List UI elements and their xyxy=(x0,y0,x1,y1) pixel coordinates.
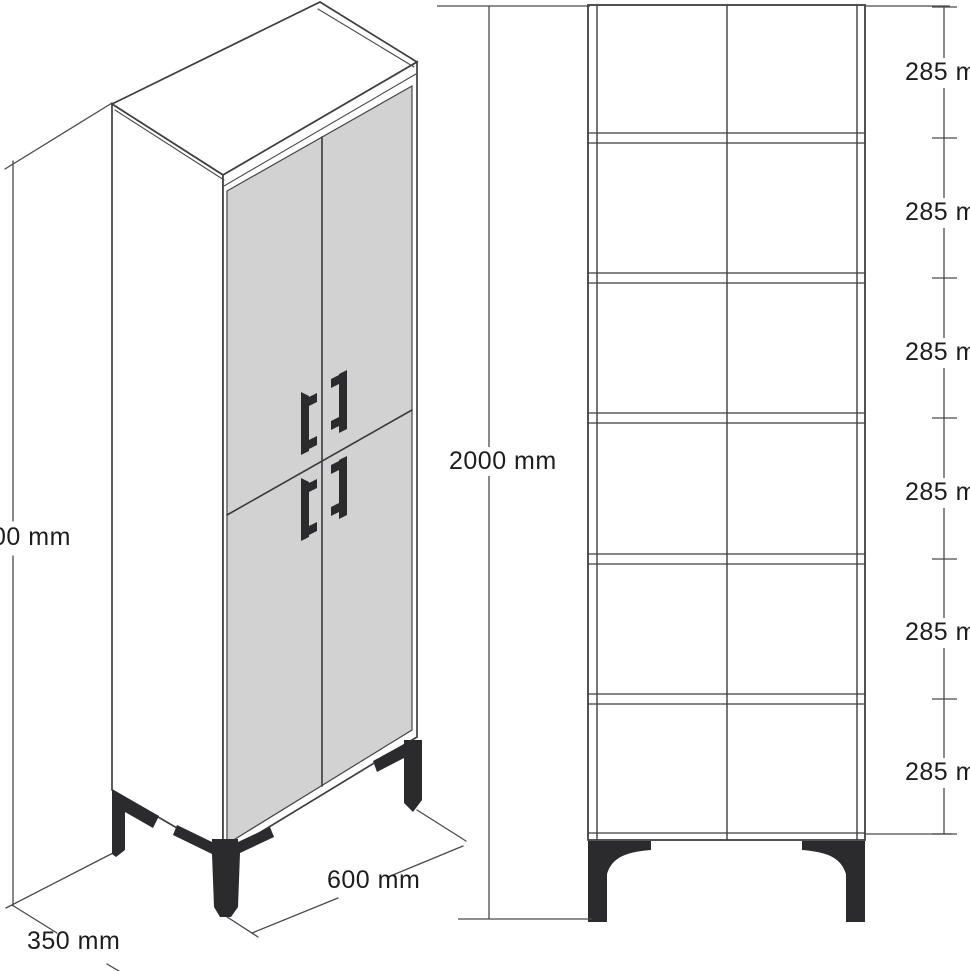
compartment-height-label: 285 mm xyxy=(905,479,970,505)
front-leg-left xyxy=(588,841,651,922)
front-leg-right xyxy=(802,841,865,922)
technical-drawing-canvas: 00 mm 350 mm 600 mm 2000 mm 285 mm 285 m… xyxy=(0,0,970,971)
front-height-dimension-label: 2000 mm xyxy=(449,448,549,474)
iso-height-extension-bottom xyxy=(6,853,113,908)
cabinet-drawing xyxy=(0,0,970,971)
compartment-height-label: 285 mm xyxy=(905,199,970,225)
cabinet-left-face xyxy=(112,104,223,855)
iso-height-dimension-label: 00 mm xyxy=(0,524,71,550)
iso-depth-dimension-label: 350 mm xyxy=(27,928,120,954)
compartment-dimension xyxy=(865,6,957,834)
iso-height-extension-top xyxy=(5,103,112,169)
door-panels xyxy=(227,86,412,844)
front-legs xyxy=(588,841,865,922)
iso-width-dimension-label: 600 mm xyxy=(327,867,420,893)
compartment-height-label: 285 mm xyxy=(905,759,970,785)
compartment-height-label: 285 mm xyxy=(905,339,970,365)
compartment-height-label: 285 mm xyxy=(905,59,970,85)
iso-width-extension-right xyxy=(417,810,466,841)
compartment-height-label: 285 mm xyxy=(905,619,970,645)
isometric-view xyxy=(5,2,466,971)
